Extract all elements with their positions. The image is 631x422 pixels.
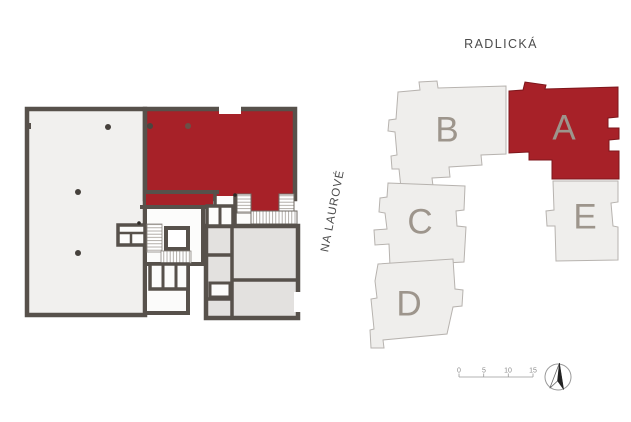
stairs-grille xyxy=(237,194,251,213)
floor-plan-door-gap xyxy=(294,292,302,312)
building-b-label: B xyxy=(435,113,458,148)
plan-graphic xyxy=(0,0,631,422)
column-dot xyxy=(185,123,191,129)
floor-plan-cells xyxy=(150,264,188,289)
building-d-label: D xyxy=(396,287,421,322)
elevator-shaft xyxy=(166,228,188,249)
scale-tick-label: 5 xyxy=(482,368,486,375)
plan-dot xyxy=(233,193,237,197)
stairs-run xyxy=(251,211,297,224)
floor-plan-small-room xyxy=(210,283,230,297)
scale-tick-label: 15 xyxy=(529,368,537,375)
stairs-flight xyxy=(147,224,162,252)
floor-plan-gray-block xyxy=(206,226,298,318)
stairs-run xyxy=(161,251,191,263)
column-dot xyxy=(75,189,81,195)
stairs-grille xyxy=(279,194,294,213)
building-a-label: A xyxy=(552,111,575,146)
scale-tick-label: 0 xyxy=(457,368,461,375)
plan-dot xyxy=(137,221,141,225)
floor-plan-unit-highlight xyxy=(145,109,295,199)
floor-plan xyxy=(25,105,302,318)
building-c-label: C xyxy=(407,205,432,240)
floor-plan-unit-tab xyxy=(251,196,279,211)
scale-tick-label: 10 xyxy=(504,368,512,375)
floor-plan-unit-corridor xyxy=(146,194,213,206)
north-arrow-icon xyxy=(544,362,573,392)
building-e-label: E xyxy=(573,200,596,235)
page: RADLICKÁ NA LAUROVÉ B A C D E 0 5 10 15 xyxy=(0,0,631,422)
column-dot xyxy=(147,123,153,129)
scale-bar xyxy=(459,374,533,378)
floor-plan-main-room xyxy=(27,109,145,315)
column-dot xyxy=(75,250,81,256)
floor-plan-window-gap xyxy=(219,105,241,114)
street-label-radlicka: RADLICKÁ xyxy=(464,37,538,51)
column-dot xyxy=(105,124,111,130)
wall-stub xyxy=(25,123,31,129)
